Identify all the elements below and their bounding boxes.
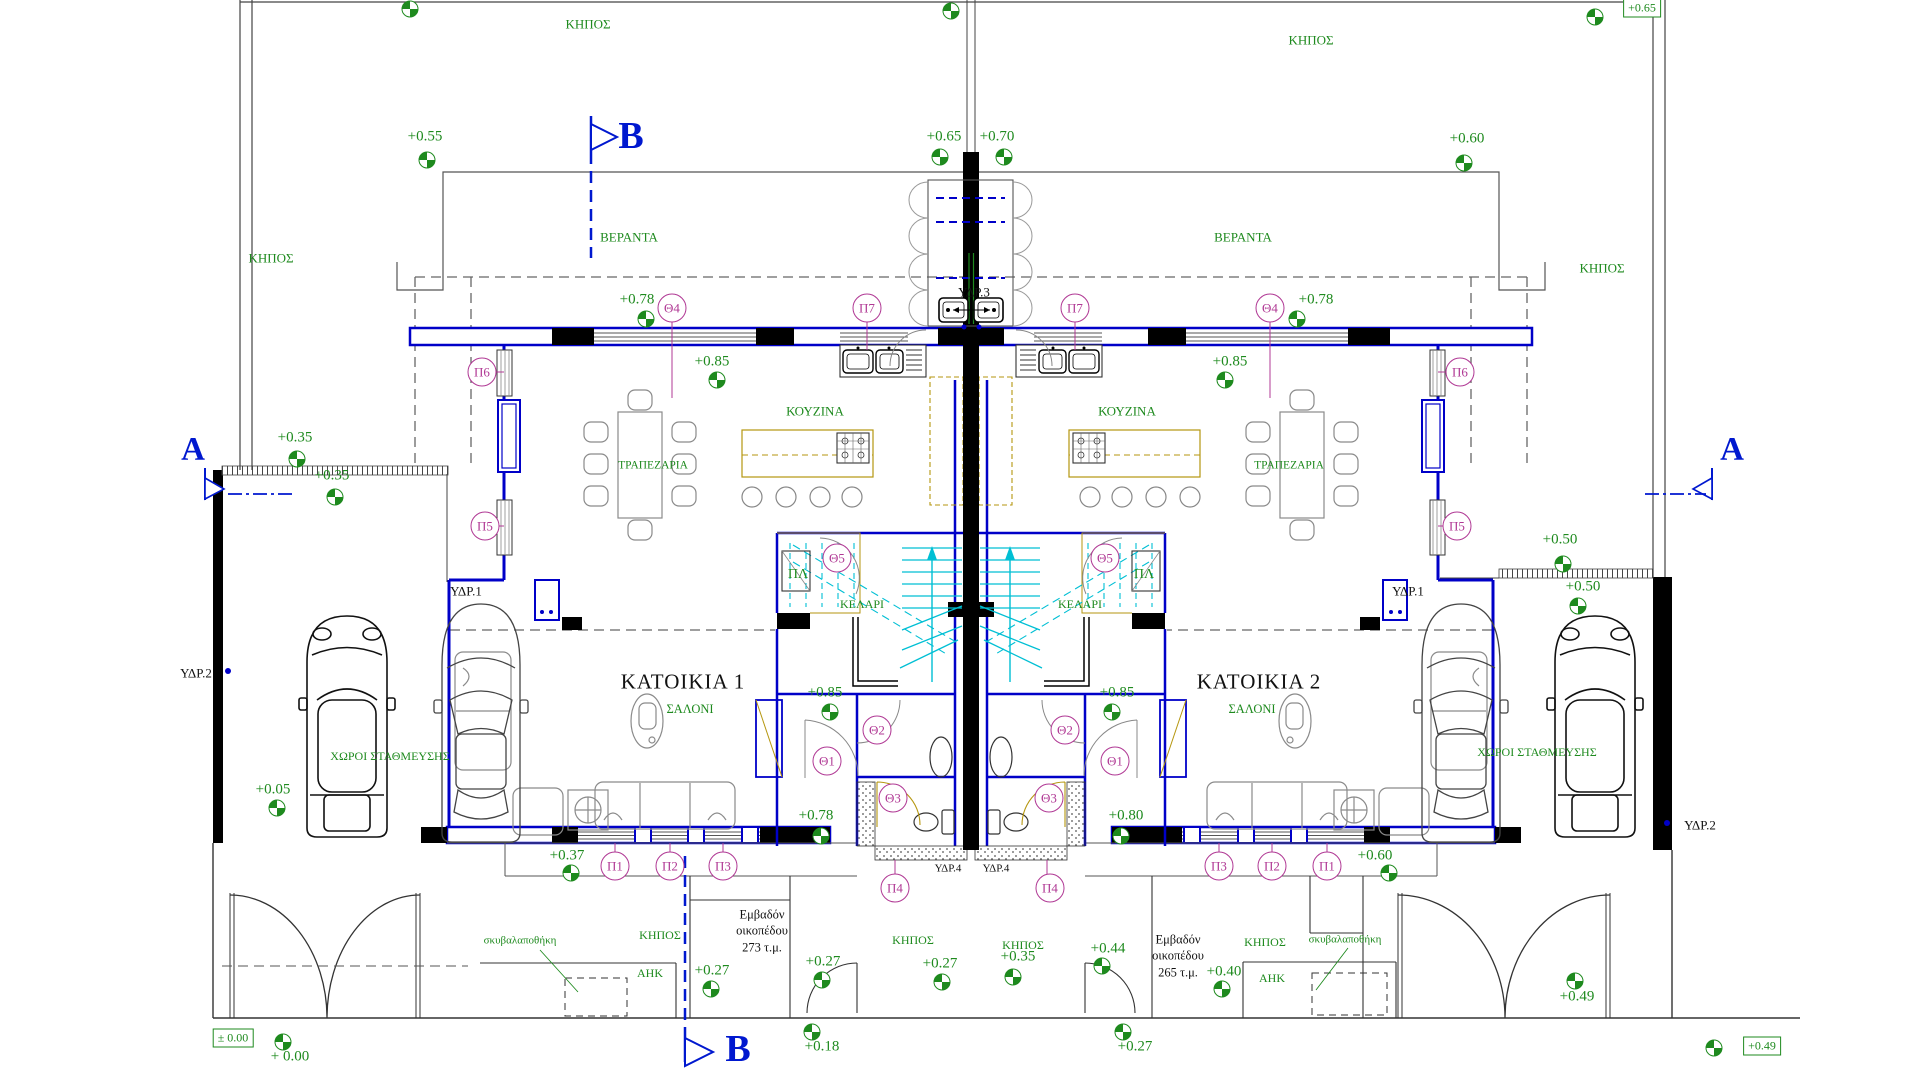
survey-marker-icon [1706, 1040, 1723, 1057]
utility-label: ΥΔΡ.1 [1392, 585, 1424, 598]
level-box: +0.65 [1623, 0, 1661, 18]
section-letter: Α [181, 432, 205, 469]
room-label: ΤΡΑΠΕΖΑΡΙΑ [618, 460, 688, 472]
survey-marker-icon [563, 865, 580, 882]
survey-marker-icon [709, 372, 726, 389]
survey-marker-icon [1217, 372, 1234, 389]
elevation-label: +0.85 [1100, 686, 1135, 701]
survey-marker-icon [402, 1, 419, 18]
elevation-label: +0.27 [1118, 1040, 1153, 1055]
door-window-tag: Π4 [881, 874, 910, 903]
door-window-tag: Π7 [853, 294, 882, 323]
survey-marker-icon [419, 152, 436, 169]
room-label: ΑΗΚ [637, 967, 663, 979]
door-window-tag: Π2 [1258, 852, 1287, 881]
elevation-label: +0.50 [1543, 533, 1578, 548]
survey-marker-icon [814, 972, 831, 989]
room-label: σκυβαλαποθήκη [484, 936, 557, 947]
door-window-tag: Π7 [1061, 294, 1090, 323]
room-label: ΠΛ [1134, 568, 1154, 582]
room-label: ΣΑΛΟΝΙ [1228, 703, 1275, 716]
level-box: ± 0.00 [213, 1029, 254, 1048]
elevation-label: +0.05 [256, 783, 291, 798]
elevation-label: +0.60 [1358, 849, 1393, 864]
elevation-label: +0.35 [315, 469, 350, 484]
door-window-tag: Π5 [471, 512, 500, 541]
elevation-label: +0.37 [550, 849, 585, 864]
room-label: ΧΩΡΟΙ ΣΤΑΘΜΕΥΣΗΣ [330, 750, 449, 762]
survey-marker-icon [1456, 155, 1473, 172]
door-window-tag: Π4 [1036, 874, 1065, 903]
room-label: σκυβαλαποθήκη [1309, 935, 1382, 946]
utility-label: ΥΔΡ.4 [983, 864, 1010, 875]
section-lines [205, 116, 1712, 1066]
door-window-tag: Θ1 [813, 747, 842, 776]
level-box: +0.49 [1743, 1037, 1781, 1056]
survey-marker-icon [1094, 958, 1111, 975]
survey-marker-icon [1381, 865, 1398, 882]
room-label: ΒΕΡΑΝΤΑ [600, 231, 658, 244]
survey-marker-icon [703, 981, 720, 998]
elevation-label: +0.35 [278, 431, 313, 446]
door-window-tag: Θ5 [1091, 544, 1120, 573]
section-letter: Α [1720, 432, 1744, 469]
survey-marker-icon [1115, 1024, 1132, 1041]
room-label: ΚΕΛΑΡΙ [1058, 598, 1102, 610]
room-label: ΧΩΡΟΙ ΣΤΑΘΜΕΥΣΗΣ [1477, 746, 1596, 758]
elevation-label: +0.27 [806, 955, 841, 970]
utility-label: ΥΔΡ.1 [450, 585, 482, 598]
elevation-label: +0.85 [808, 686, 843, 701]
survey-marker-icon [1005, 969, 1022, 986]
door-window-tag: Θ2 [863, 716, 892, 745]
elevation-label: +0.65 [927, 130, 962, 145]
room-label: ΚΗΠΟΣ [639, 929, 681, 941]
survey-marker-icon [943, 3, 960, 20]
survey-marker-icon [1570, 598, 1587, 615]
survey-marker-icon [822, 704, 839, 721]
survey-marker-icon [327, 489, 344, 506]
door-window-tag: Π5 [1443, 512, 1472, 541]
room-label: ΚΗΠΟΣ [1579, 262, 1624, 275]
survey-marker-icon [269, 800, 286, 817]
room-label: ΑΗΚ [1259, 972, 1285, 984]
room-label: ΚΗΠΟΣ [248, 252, 293, 265]
room-label: ΣΑΛΟΝΙ [666, 703, 713, 716]
survey-marker-icon [934, 974, 951, 991]
survey-marker-icon [996, 149, 1013, 166]
survey-marker-icon [813, 828, 830, 845]
survey-marker-icon [804, 1024, 821, 1041]
room-label: ΚΗΠΟΣ [1244, 936, 1286, 948]
door-window-tag: Θ3 [1035, 784, 1064, 813]
elevation-label: +0.78 [1299, 293, 1334, 308]
elevation-label: +0.70 [980, 130, 1015, 145]
survey-marker-icon [1113, 828, 1130, 845]
utility-label: ΥΔΡ.3 [958, 286, 990, 299]
section-letter: Β [618, 114, 643, 158]
door-window-tag: Θ3 [879, 784, 908, 813]
room-label: ΒΕΡΑΝΤΑ [1214, 231, 1272, 244]
elevation-label: +0.35 [1001, 950, 1036, 965]
survey-marker-icon [1555, 556, 1572, 573]
room-label: ΚΕΛΑΡΙ [840, 598, 884, 610]
elevation-label: +0.78 [620, 293, 655, 308]
elevation-label: +0.55 [408, 130, 443, 145]
survey-marker-icon [275, 1034, 292, 1051]
room-label: ΚΟΥΖΙΝΑ [786, 405, 844, 418]
survey-marker-icon [932, 149, 949, 166]
section-letter: Β [725, 1027, 750, 1071]
room-label: ΚΗΠΟΣ [1288, 34, 1333, 47]
door-window-tag: Π6 [1446, 358, 1475, 387]
floor-plan-canvas: ΚΗΠΟΣΚΗΠΟΣΚΗΠΟΣΚΗΠΟΣΒΕΡΑΝΤΑΒΕΡΑΝΤΑΤΡΑΠΕΖ… [0, 0, 1920, 1080]
elevation-label: +0.27 [695, 964, 730, 979]
survey-marker-icon [1104, 704, 1121, 721]
door-window-tag: Π1 [1313, 852, 1342, 881]
door-window-tag: Θ4 [658, 294, 687, 323]
elevation-label: +0.49 [1560, 990, 1595, 1005]
door-window-tag: Θ5 [823, 544, 852, 573]
center-porch-linework [909, 0, 1032, 850]
door-window-tag: Θ1 [1101, 747, 1130, 776]
room-label: ΠΛ [788, 568, 808, 582]
survey-marker-icon [289, 451, 306, 468]
elevation-label: +0.85 [695, 355, 730, 370]
door-window-tag: Π6 [468, 358, 497, 387]
room-label: ΚΗΠΟΣ [892, 934, 934, 946]
elevation-label: +0.85 [1213, 355, 1248, 370]
elevation-label: +0.80 [1109, 809, 1144, 824]
plot-area-note: Εμβαδόνοικοπέδου265 τ.μ. [1152, 932, 1204, 981]
room-label: ΚΗΠΟΣ [565, 18, 610, 31]
elevation-label: +0.40 [1207, 965, 1242, 980]
elevation-label: +0.27 [923, 957, 958, 972]
door-window-tag: Π3 [709, 852, 738, 881]
utility-label: ΥΔΡ.4 [935, 864, 962, 875]
elevation-label: +0.78 [799, 809, 834, 824]
plot-area-note: Εμβαδόνοικοπέδου273 τ.μ. [736, 907, 788, 956]
door-window-tag: Θ2 [1051, 716, 1080, 745]
survey-marker-icon [1567, 973, 1584, 990]
elevation-label: +0.44 [1091, 942, 1126, 957]
elevation-label: + 0.00 [271, 1050, 309, 1065]
house-title: ΚΑΤΟΙΚΙΑ 1 [621, 672, 746, 693]
door-window-tag: Π1 [601, 852, 630, 881]
room-label: ΤΡΑΠΕΖΑΡΙΑ [1254, 460, 1324, 472]
door-window-tag: Θ4 [1256, 294, 1285, 323]
elevation-label: +0.18 [805, 1040, 840, 1055]
door-window-tag: Π3 [1205, 852, 1234, 881]
room-label: ΚΟΥΖΙΝΑ [1098, 405, 1156, 418]
house-title: ΚΑΤΟΙΚΙΑ 2 [1197, 672, 1322, 693]
survey-marker-icon [638, 311, 655, 328]
elevation-label: +0.60 [1450, 132, 1485, 147]
survey-marker-icon [1214, 981, 1231, 998]
survey-marker-icon [1289, 311, 1306, 328]
survey-marker-icon [1587, 9, 1604, 26]
door-window-tag: Π2 [656, 852, 685, 881]
plan-linework [0, 0, 1920, 1080]
utility-label: ΥΔΡ.2 [1684, 819, 1716, 832]
elevation-label: +0.50 [1566, 580, 1601, 595]
utility-label: ΥΔΡ.2 [180, 667, 212, 680]
